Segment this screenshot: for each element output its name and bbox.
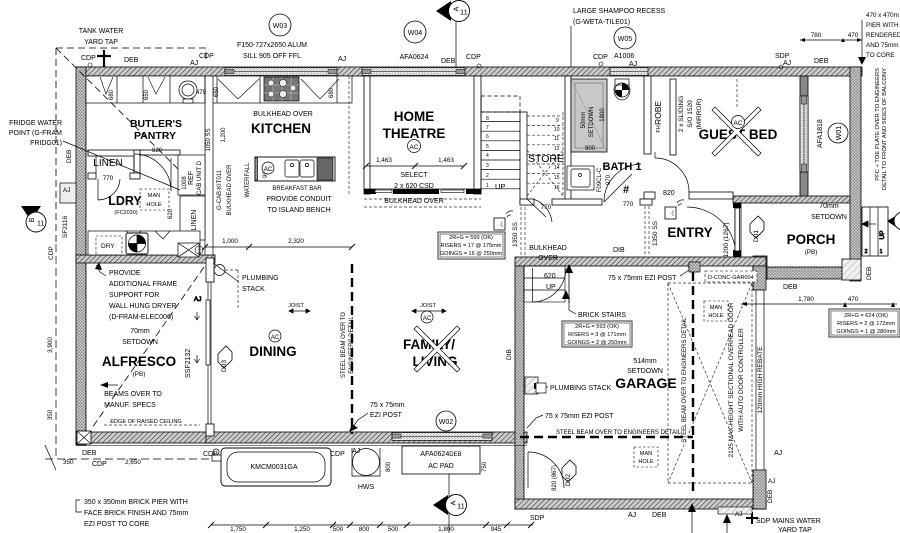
svg-text:CAB UNIT D: CAB UNIT D: [197, 160, 203, 195]
svg-text:DRY: DRY: [101, 243, 115, 250]
svg-text:DEB: DEB: [66, 150, 73, 163]
svg-text:2R+G = 624 (OK): 2R+G = 624 (OK): [844, 313, 888, 319]
svg-text:2,650: 2,650: [125, 459, 141, 466]
svg-text:PFC + TOE PLATE OVER TO ENGINE: PFC + TOE PLATE OVER TO ENGINEERS: [875, 68, 881, 181]
svg-text:AJ: AJ: [735, 511, 742, 518]
svg-text:AFA0624DEB: AFA0624DEB: [420, 451, 461, 458]
svg-text:BATH 1: BATH 1: [603, 161, 642, 173]
svg-text:2R+G = 593 (OK): 2R+G = 593 (OK): [575, 324, 619, 330]
svg-text:FRIDGE WATER: FRIDGE WATER: [9, 120, 62, 127]
svg-text:10: 10: [554, 127, 560, 133]
svg-text:CDP: CDP: [48, 246, 55, 260]
svg-text:AC: AC: [409, 144, 418, 151]
svg-text:OVER: OVER: [538, 255, 558, 262]
svg-text:500: 500: [333, 526, 344, 533]
svg-text:MAN: MAN: [710, 305, 722, 311]
svg-text:REF: REF: [188, 171, 195, 185]
svg-text:470: 470: [848, 296, 859, 303]
svg-text:〈: 〈: [497, 222, 503, 229]
svg-text:TANK WATER: TANK WATER: [79, 28, 124, 35]
svg-text:FRIDG01): FRIDG01): [30, 140, 62, 147]
svg-text:DEB: DEB: [866, 267, 873, 280]
svg-text:PANTRY: PANTRY: [134, 130, 176, 142]
svg-text:1,000: 1,000: [222, 238, 238, 245]
svg-text:11: 11: [554, 136, 559, 142]
svg-text:15: 15: [554, 175, 560, 181]
svg-text:W03: W03: [273, 23, 288, 30]
svg-text:D03: D03: [221, 360, 228, 372]
svg-text:SUPPORT FOR: SUPPORT FOR: [109, 292, 159, 299]
svg-text:GARAGE: GARAGE: [615, 375, 676, 391]
svg-text:AJ: AJ: [338, 56, 346, 63]
svg-text:75 x 75mm EZI POST: 75 x 75mm EZI POST: [545, 413, 614, 420]
svg-text:680: 680: [329, 87, 335, 98]
svg-text:MANUF. SPECS: MANUF. SPECS: [104, 402, 156, 409]
svg-text:AJ: AJ: [352, 448, 360, 455]
svg-text:AJ: AJ: [194, 296, 201, 303]
svg-text:DEB: DEB: [767, 490, 774, 503]
svg-text:RISERS = 3 @ 171mm: RISERS = 3 @ 171mm: [568, 332, 626, 338]
svg-text:AJ: AJ: [783, 60, 791, 67]
svg-text:PIER WITH: PIER WITH: [866, 22, 899, 29]
svg-text:945: 945: [491, 526, 502, 533]
svg-text:1,463: 1,463: [376, 157, 392, 164]
svg-text:LDRY: LDRY: [108, 194, 142, 208]
svg-text:11: 11: [37, 221, 44, 228]
svg-text:G-CAB-KIT011: G-CAB-KIT011: [217, 169, 223, 210]
svg-text:GOINGS = 2 @ 250mm: GOINGS = 2 @ 250mm: [567, 340, 627, 346]
svg-text:CDP: CDP: [199, 53, 214, 60]
svg-text:70mm: 70mm: [130, 328, 150, 335]
svg-text:(FC2030): (FC2030): [114, 210, 137, 216]
svg-text:PLUMBING: PLUMBING: [242, 275, 279, 282]
svg-text:EDGE OF RAISED CEILING: EDGE OF RAISED CEILING: [110, 419, 182, 425]
svg-text:ENGINEERS DETAIL: ENGINEERS DETAIL: [349, 316, 355, 374]
svg-text:JOIST: JOIST: [288, 303, 304, 309]
svg-text:514mm: 514mm: [633, 358, 657, 365]
svg-text:11: 11: [457, 502, 465, 511]
svg-text:350: 350: [63, 459, 74, 466]
svg-text:WALL HUNG DRYER: WALL HUNG DRYER: [109, 303, 176, 310]
svg-text:2,320: 2,320: [288, 238, 304, 245]
svg-text:HOLE: HOLE: [638, 459, 654, 465]
svg-text:820: 820: [152, 148, 163, 154]
svg-text:75 x 75mm EZI POST: 75 x 75mm EZI POST: [608, 275, 677, 282]
svg-text:770: 770: [623, 201, 634, 208]
svg-text:PLUMBING STACK: PLUMBING STACK: [550, 385, 612, 392]
svg-text:DIB: DIB: [506, 349, 513, 360]
svg-text:820: 820: [663, 190, 675, 197]
svg-text:650: 650: [214, 86, 220, 97]
svg-text:620: 620: [544, 273, 556, 280]
svg-text:3,900: 3,900: [47, 337, 54, 353]
svg-text:1800: 1800: [600, 108, 606, 122]
svg-text:ALFRESCO: ALFRESCO: [102, 354, 176, 369]
svg-text:AC: AC: [271, 335, 280, 341]
svg-text:1,750: 1,750: [230, 526, 246, 533]
svg-text:5: 5: [486, 144, 489, 150]
svg-text:120mm HIGH REBATE: 120mm HIGH REBATE: [757, 346, 764, 414]
svg-text:(G-WETA-TILE01): (G-WETA-TILE01): [573, 19, 630, 26]
svg-text:1,463: 1,463: [438, 157, 454, 164]
svg-text:AJ: AJ: [190, 60, 198, 67]
svg-text:RISERS = 2 @ 172mm: RISERS = 2 @ 172mm: [837, 321, 895, 327]
svg-text:900: 900: [585, 146, 596, 152]
svg-text:MAN: MAN: [148, 193, 160, 199]
svg-text:LARGE SHAMPOO RECESS: LARGE SHAMPOO RECESS: [573, 8, 666, 15]
svg-text:770: 770: [103, 175, 114, 182]
svg-text:W04: W04: [408, 30, 423, 37]
svg-text:(D-FRAM-ELEC006): (D-FRAM-ELEC006): [109, 314, 173, 321]
svg-text:DEB: DEB: [441, 58, 456, 65]
svg-text:AJ: AJ: [774, 450, 782, 457]
svg-text:SDP: SDP: [775, 53, 790, 60]
svg-text:7: 7: [486, 125, 489, 131]
svg-text:BULKHEAD: BULKHEAD: [529, 245, 567, 252]
svg-text:1350 SS: 1350 SS: [652, 220, 659, 246]
svg-text:TO CORE: TO CORE: [866, 52, 895, 59]
svg-text:BEAMS OVER TO: BEAMS OVER TO: [104, 391, 162, 398]
svg-text:WITH AUTO DOOR CONTROLLER: WITH AUTO DOOR CONTROLLER: [738, 328, 745, 432]
svg-text:RENDERED: RENDERED: [866, 32, 900, 39]
svg-text:1,780: 1,780: [798, 296, 814, 303]
svg-text:650: 650: [144, 89, 150, 100]
svg-text:470: 470: [848, 32, 859, 39]
svg-text:HOLE: HOLE: [708, 313, 724, 319]
svg-text:AJ: AJ: [628, 512, 636, 519]
svg-text:DEB: DEB: [814, 58, 829, 65]
svg-text:770: 770: [541, 204, 552, 211]
svg-text:LINEN: LINEN: [191, 210, 198, 231]
svg-text:1,800: 1,800: [438, 526, 454, 533]
svg-text:350: 350: [47, 409, 54, 420]
svg-text:2 x SLIDING: 2 x SLIDING: [678, 96, 685, 132]
svg-text:780: 780: [811, 32, 822, 39]
svg-text:(PB): (PB): [133, 371, 146, 378]
svg-text:F09CL-C: F09CL-C: [597, 167, 603, 192]
svg-text:CDP: CDP: [92, 461, 107, 468]
svg-text:SF2116: SF2116: [62, 215, 69, 238]
svg-text:BULKHEAD OVER: BULKHEAD OVER: [227, 164, 233, 216]
svg-text:14: 14: [554, 165, 560, 171]
svg-text:AC: AC: [733, 120, 742, 127]
svg-text:HOME: HOME: [394, 109, 435, 124]
svg-text:SILL 905 OFF FFL: SILL 905 OFF FFL: [243, 53, 301, 60]
svg-text:1: 1: [486, 183, 489, 189]
svg-text:SDP MAINS WATER: SDP MAINS WATER: [756, 518, 821, 525]
svg-text:2: 2: [864, 249, 867, 255]
svg-text:WATERFALL: WATERFALL: [245, 162, 251, 198]
svg-text:SETDOWN: SETDOWN: [811, 214, 847, 221]
svg-text:(MIRROR): (MIRROR): [696, 99, 703, 130]
svg-text:820 (867): 820 (867): [552, 465, 558, 491]
svg-text:3: 3: [486, 163, 489, 169]
svg-text:479: 479: [196, 90, 207, 96]
svg-text:620: 620: [168, 208, 174, 219]
svg-text:S/O 1520: S/O 1520: [687, 100, 694, 128]
svg-text:W01: W01: [836, 126, 843, 141]
svg-text:SDP: SDP: [530, 515, 545, 522]
svg-text:#: #: [623, 184, 629, 196]
svg-text:ROBE: ROBE: [653, 101, 663, 125]
svg-text:JOIST: JOIST: [420, 303, 436, 309]
svg-text:D02: D02: [565, 474, 572, 486]
svg-text:UP: UP: [879, 230, 886, 239]
svg-text:TO ISLAND BENCH: TO ISLAND BENCH: [267, 207, 330, 214]
svg-text:DEB: DEB: [652, 512, 667, 519]
svg-text:UP: UP: [546, 284, 556, 291]
svg-text:75 x 75mm: 75 x 75mm: [370, 402, 405, 409]
svg-text:YARD TAP: YARD TAP: [778, 527, 812, 533]
svg-text:AFA0624: AFA0624: [400, 54, 429, 61]
svg-text:STEEL BEAM OVER TO ENGINEERS D: STEEL BEAM OVER TO ENGINEERS DETAIL: [682, 317, 688, 443]
svg-text:AJ: AJ: [63, 187, 70, 194]
svg-text:2125 MAX-HEIGHT SECTIONAL OVER: 2125 MAX-HEIGHT SECTIONAL OVERHEAD DOOR: [728, 302, 735, 457]
svg-text:POINT (G-FRAM: POINT (G-FRAM: [9, 130, 62, 137]
svg-text:PROVIDE: PROVIDE: [109, 270, 141, 277]
svg-text:HOLE: HOLE: [146, 202, 162, 208]
svg-text:RISERS = 17 @ 175mm: RISERS = 17 @ 175mm: [441, 243, 502, 249]
svg-text:W05: W05: [618, 36, 633, 43]
svg-text:SETDOWN: SETDOWN: [627, 368, 663, 375]
svg-text:DEB: DEB: [82, 450, 97, 457]
svg-text:STACK: STACK: [242, 286, 265, 293]
svg-text:DEB: DEB: [783, 284, 798, 291]
svg-text:9: 9: [556, 118, 559, 124]
svg-text:F150-727x2650 ALUM: F150-727x2650 ALUM: [237, 42, 307, 49]
svg-text:SELECT: SELECT: [400, 172, 428, 179]
svg-text:350 x 350mm BRICK PIER WITH: 350 x 350mm BRICK PIER WITH: [84, 499, 188, 506]
svg-text:KITCHEN: KITCHEN: [251, 121, 311, 136]
svg-text:2R+G = 599 (OK): 2R+G = 599 (OK): [449, 235, 493, 241]
svg-text:1,200: 1,200: [221, 127, 227, 143]
svg-text:PORCH: PORCH: [787, 232, 836, 247]
svg-text:AJ: AJ: [768, 478, 775, 485]
svg-text:AC PAD: AC PAD: [428, 463, 454, 470]
svg-text:50mm: 50mm: [581, 112, 587, 129]
svg-text:STEEL BEAM OVER TO ENGINEERS D: STEEL BEAM OVER TO ENGINEERS DETAIL: [556, 430, 682, 436]
svg-text:AC: AC: [264, 167, 273, 173]
svg-text:D01: D01: [753, 230, 760, 242]
svg-text:1350 SS: 1350 SS: [512, 221, 519, 247]
svg-text:1200 (1267): 1200 (1267): [723, 222, 730, 257]
svg-text:YARD TAP: YARD TAP: [84, 39, 118, 46]
svg-text:DEB: DEB: [124, 57, 139, 64]
svg-text:GOINGS = 16 @ 250mm: GOINGS = 16 @ 250mm: [440, 251, 503, 257]
svg-text:2 x 620 CSD: 2 x 620 CSD: [394, 183, 434, 190]
svg-text:SETDOWN: SETDOWN: [122, 339, 158, 346]
svg-text:DETAIL TO FRONT AND SIDES OF B: DETAIL TO FRONT AND SIDES OF BALCONY: [882, 68, 888, 190]
svg-text:PROVIDE CONDUIT: PROVIDE CONDUIT: [266, 196, 332, 203]
svg-text:11: 11: [460, 8, 468, 17]
svg-text:ENTRY: ENTRY: [667, 225, 712, 240]
svg-text:800: 800: [386, 461, 392, 472]
svg-text:KMCM0031GA: KMCM0031GA: [250, 464, 297, 471]
svg-text:AJ: AJ: [629, 61, 637, 68]
svg-text:EZI POST: EZI POST: [370, 412, 403, 419]
svg-text:750: 750: [482, 461, 488, 472]
svg-text:CDP: CDP: [466, 54, 481, 61]
svg-text:CDP: CDP: [203, 451, 218, 458]
svg-text:SETDOWN: SETDOWN: [589, 107, 595, 138]
svg-text:AC: AC: [423, 316, 432, 322]
svg-text:CDP: CDP: [593, 54, 608, 61]
svg-text:UP: UP: [495, 182, 505, 191]
svg-text:A1006: A1006: [614, 53, 634, 60]
svg-text:1050 SS: 1050 SS: [206, 128, 212, 151]
svg-text:STEEL BEAM OVER TO: STEEL BEAM OVER TO: [341, 312, 347, 378]
svg-text:2: 2: [486, 173, 489, 179]
svg-text:FACE BRICK FINISH AND 75mm: FACE BRICK FINISH AND 75mm: [84, 510, 188, 517]
svg-text:MAN: MAN: [640, 451, 652, 457]
svg-text:D-CONC-GAR004: D-CONC-GAR004: [708, 275, 754, 281]
svg-text:800: 800: [359, 526, 370, 533]
svg-text:500: 500: [388, 526, 399, 533]
svg-text:FH: FH: [656, 125, 662, 132]
svg-text:CDP: CDP: [81, 55, 96, 62]
svg-text:1,250: 1,250: [294, 526, 310, 533]
svg-text:SSF2132: SSF2132: [185, 349, 192, 378]
svg-text:EZI POST TO CORE: EZI POST TO CORE: [84, 521, 150, 528]
svg-text:BULKHEAD OVER: BULKHEAD OVER: [253, 111, 313, 118]
svg-text:8: 8: [486, 116, 489, 122]
svg-text:6: 6: [486, 134, 489, 140]
svg-text:B: B: [29, 217, 36, 222]
svg-text:ADDITIONAL FRAME: ADDITIONAL FRAME: [109, 281, 178, 288]
svg-text:970: 970: [606, 174, 612, 185]
svg-text:1: 1: [879, 249, 882, 255]
svg-text:DINING: DINING: [249, 344, 296, 359]
svg-text:BUTLER'S: BUTLER'S: [130, 118, 182, 130]
svg-text:AFA1818: AFA1818: [817, 119, 824, 148]
svg-text:12: 12: [554, 146, 560, 152]
svg-text:BRICK STAIRS: BRICK STAIRS: [578, 312, 626, 319]
svg-text:70mm: 70mm: [819, 203, 839, 210]
svg-text:GOINGS = 1 @ 280mm: GOINGS = 1 @ 280mm: [836, 329, 896, 335]
svg-text:〈: 〈: [668, 211, 674, 218]
svg-text:AND 75mm: AND 75mm: [866, 42, 899, 49]
svg-text:680: 680: [109, 89, 115, 100]
svg-text:W02: W02: [439, 419, 454, 426]
svg-text:DIB: DIB: [613, 247, 625, 254]
svg-text:BREAKFAST BAR: BREAKFAST BAR: [272, 186, 322, 192]
svg-text:470 x 470m: 470 x 470m: [866, 12, 899, 19]
svg-text:HWS: HWS: [358, 484, 375, 491]
svg-text:CDP: CDP: [330, 451, 345, 458]
svg-text:4: 4: [486, 153, 489, 159]
svg-text:(PB): (PB): [805, 249, 818, 256]
svg-text:THEATRE: THEATRE: [383, 126, 446, 141]
